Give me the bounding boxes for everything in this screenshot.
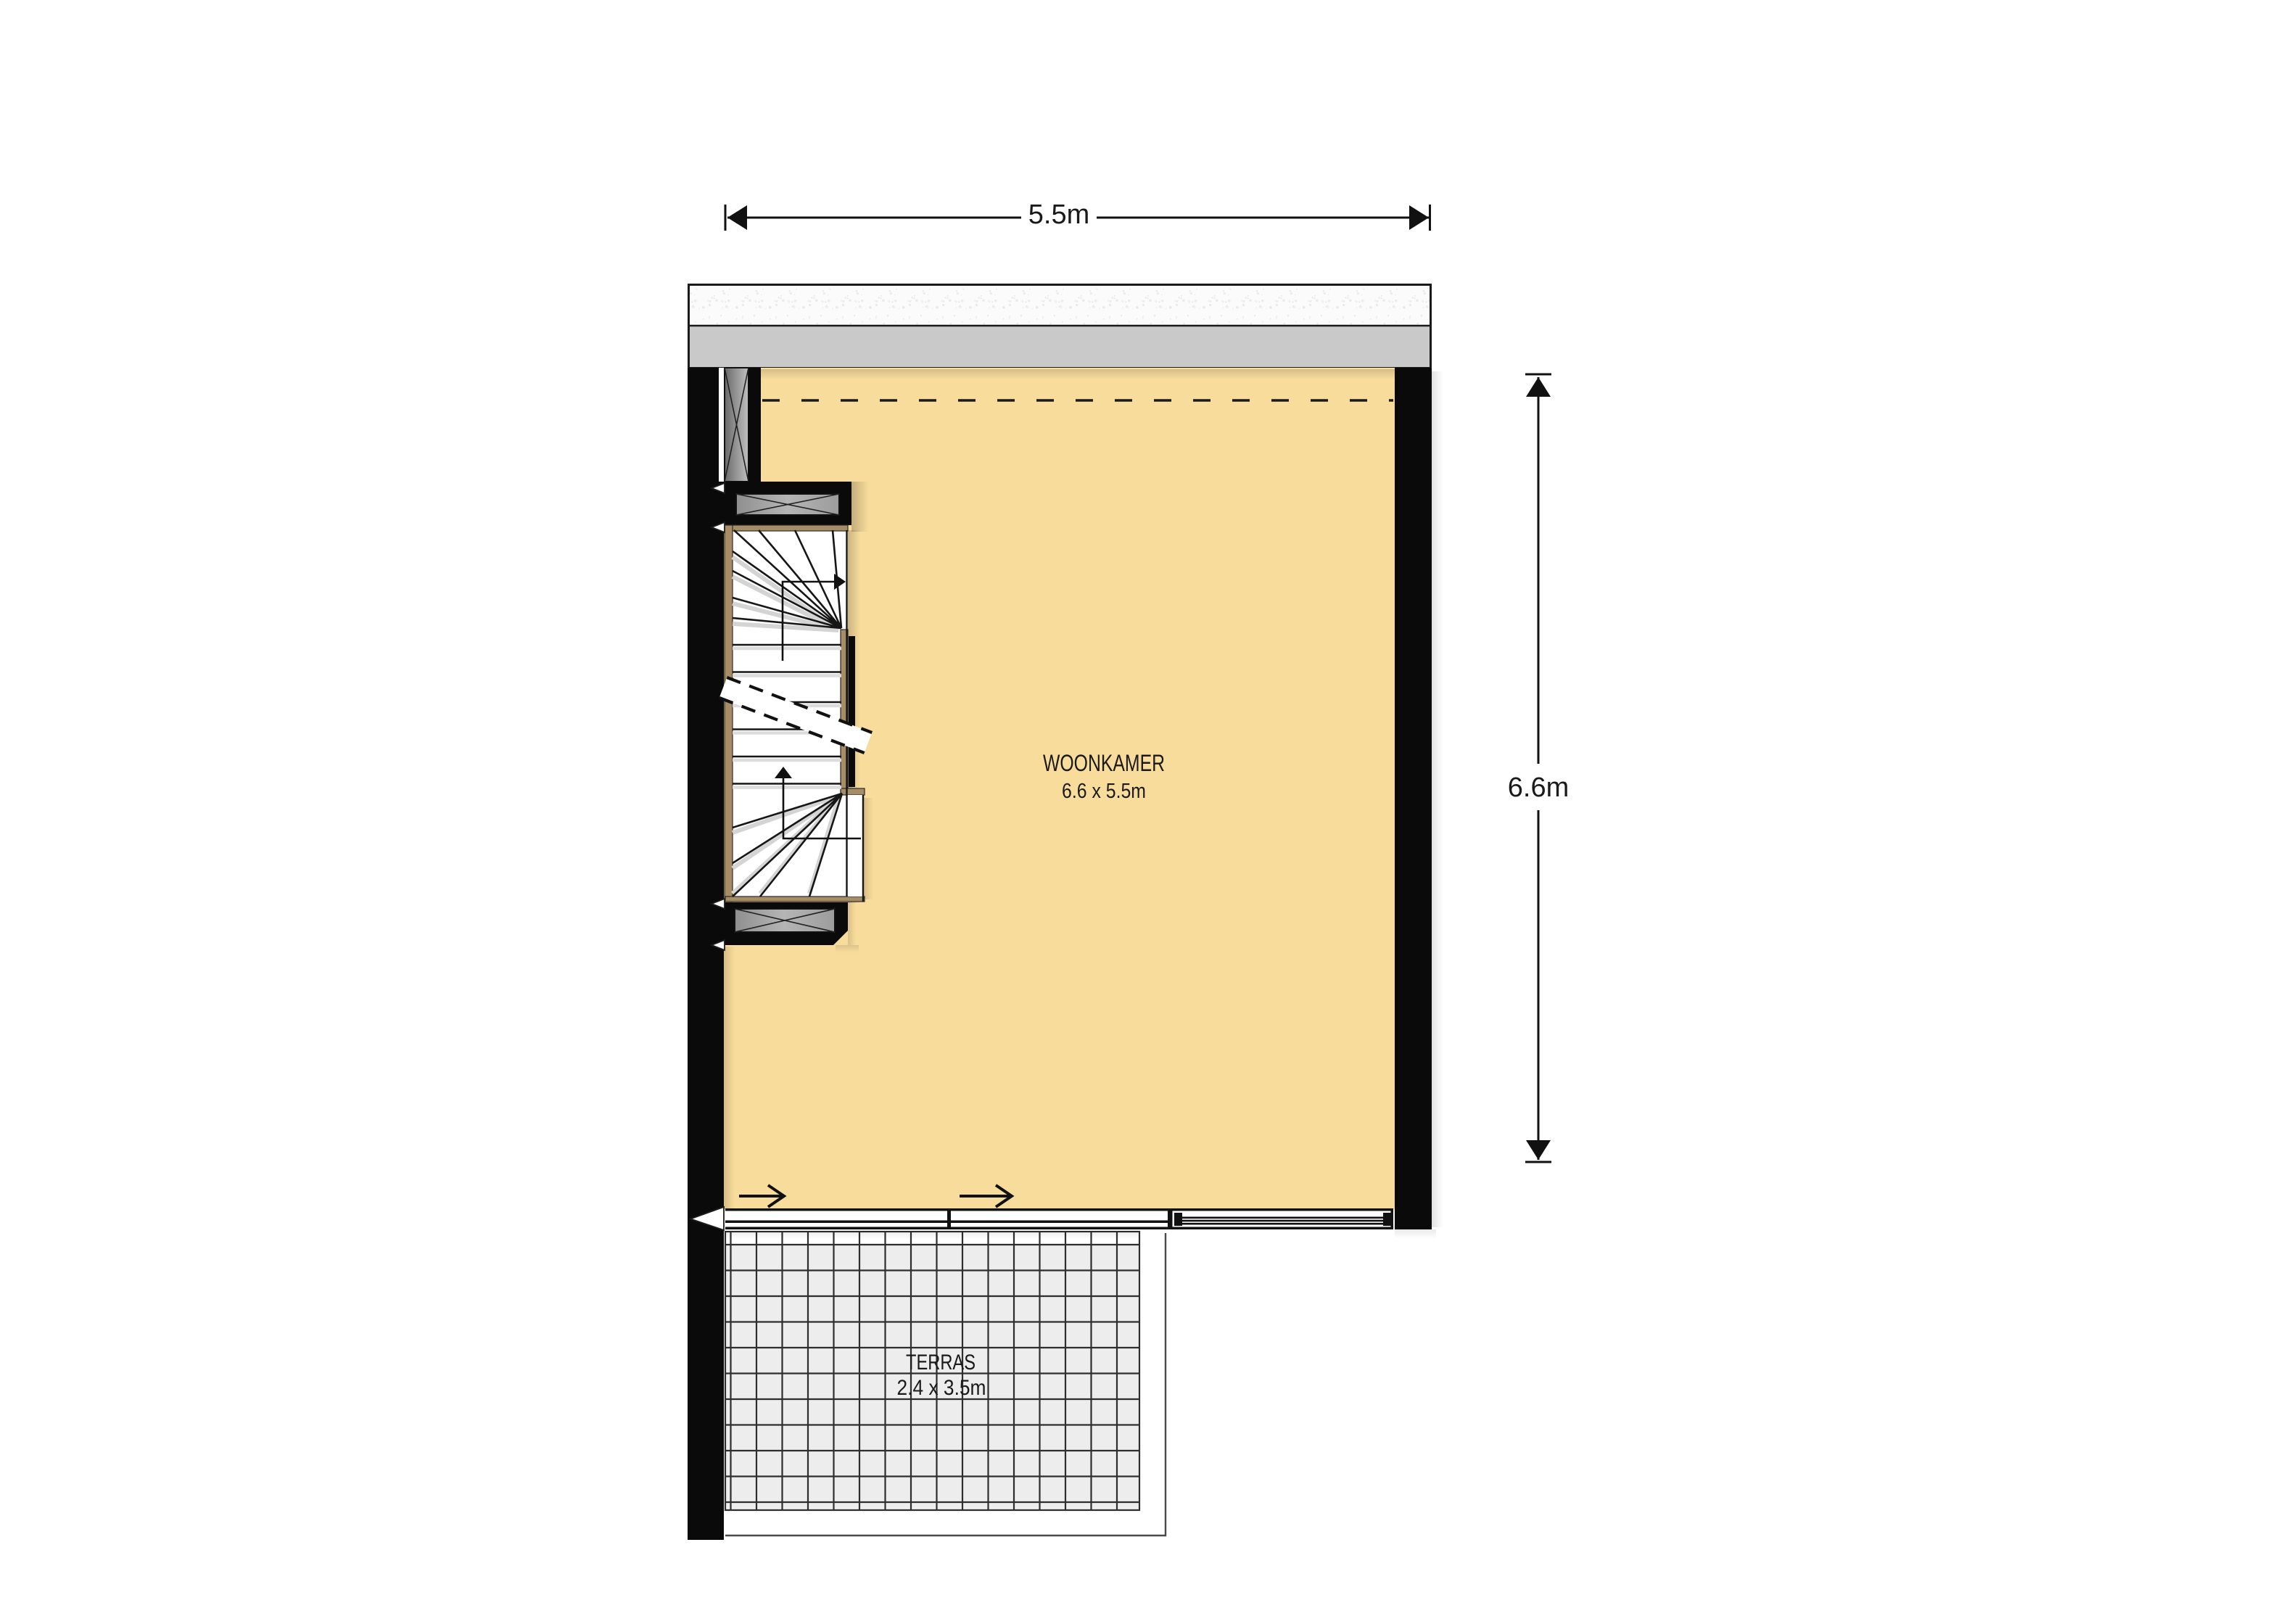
svg-text:2.4 x 3.5m: 2.4 x 3.5m xyxy=(897,1376,986,1400)
svg-text:6.6m: 6.6m xyxy=(1508,772,1569,803)
svg-text:6.6 x 5.5m: 6.6 x 5.5m xyxy=(1062,780,1146,803)
svg-text:TERRAS: TERRAS xyxy=(906,1351,976,1374)
svg-text:WOONKAMER: WOONKAMER xyxy=(1043,750,1165,776)
svg-text:5.5m: 5.5m xyxy=(1028,199,1089,230)
